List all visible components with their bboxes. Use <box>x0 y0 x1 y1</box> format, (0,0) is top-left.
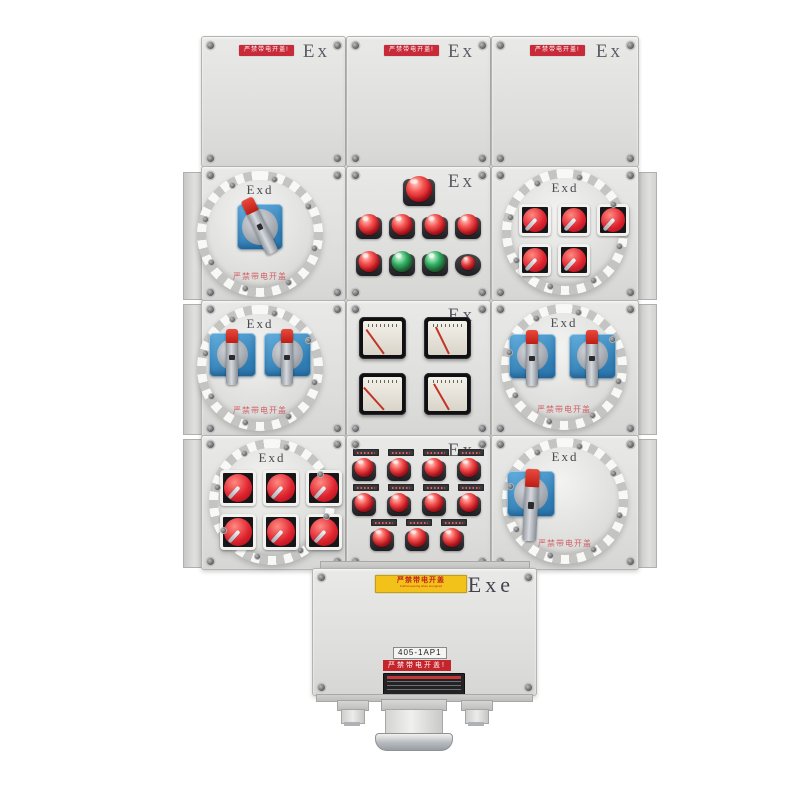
corner-screw <box>479 441 486 448</box>
handle-red-tip <box>281 329 293 343</box>
corner-screw <box>627 441 634 448</box>
labeled-indicator <box>440 519 468 551</box>
explosion-proof-cover: Exd 严禁带电开盖 <box>502 438 628 564</box>
corner-screw <box>627 155 634 162</box>
meter-ticks <box>433 380 462 383</box>
corner-screw <box>352 425 359 432</box>
exd-marking: Exd <box>502 180 628 196</box>
lamp-lens <box>355 493 374 512</box>
toggle-row <box>220 470 342 506</box>
meter-needle <box>434 327 448 355</box>
exd-marking: Exd <box>502 449 628 465</box>
warning-strip: 严禁带电开盖! <box>530 45 585 56</box>
nameplate <box>383 673 465 695</box>
rotary-switch[interactable] <box>237 204 283 250</box>
meter-ticks <box>433 324 462 327</box>
top-enclosure-2: 严禁带电开盖! Ex <box>346 36 491 167</box>
lamp-lens <box>359 251 380 272</box>
indicator-lamp-grid <box>347 449 490 551</box>
corner-screw <box>207 155 214 162</box>
cover-bolt <box>221 528 226 533</box>
cover-bolt <box>306 338 311 343</box>
meter-dial <box>428 321 467 355</box>
handle-slot <box>589 356 594 362</box>
corner-screw <box>497 441 504 448</box>
indicator-row <box>347 214 490 239</box>
lamp-lens <box>425 214 446 235</box>
top-enclosure-1: 严禁带电开盖! Ex <box>201 36 346 167</box>
handle-slot <box>528 502 535 509</box>
labeled-indicator <box>405 519 433 551</box>
module-pushbutton-panel: Ex <box>346 166 491 301</box>
toggle-row <box>519 244 590 276</box>
cover-bolt <box>318 472 323 477</box>
labeled-indicator <box>457 449 485 481</box>
side-flange-left-3 <box>183 439 202 568</box>
handle-red-tip <box>526 330 538 344</box>
ex-marking: Ex <box>448 41 475 63</box>
toggle-switch[interactable] <box>306 470 342 506</box>
labeled-indicator <box>387 449 415 481</box>
meter-needle <box>365 329 384 354</box>
lamp-lens <box>425 251 446 272</box>
toggle-switch-group <box>519 204 629 276</box>
meter-dial <box>428 377 467 411</box>
toggle-switch[interactable] <box>597 204 629 236</box>
indicator-row <box>347 484 490 516</box>
lamp-label-plate <box>388 484 414 491</box>
corner-screw <box>497 42 504 49</box>
corner-screw <box>207 306 214 313</box>
cover-bolt <box>611 471 616 476</box>
exd-marking: Exd <box>209 450 335 466</box>
push-button-red[interactable] <box>455 251 481 276</box>
cover-bolt <box>242 451 247 456</box>
rotary-switch[interactable] <box>209 333 256 377</box>
cover-bolt <box>255 554 260 559</box>
toggle-switch[interactable] <box>558 204 590 236</box>
corner-screw <box>497 425 504 432</box>
lamp-label-plate <box>458 484 484 491</box>
corner-screw <box>334 306 341 313</box>
toggle-switch[interactable] <box>519 204 551 236</box>
cover-bolt <box>209 394 214 399</box>
labeled-indicator <box>370 519 398 551</box>
corner-screw <box>334 172 341 179</box>
indicator-lamp <box>455 214 481 239</box>
corner-screw <box>352 306 359 313</box>
equipment-tag: 405-1AP1 <box>393 647 447 659</box>
labeled-indicator <box>457 484 485 516</box>
handle-slot <box>284 355 289 361</box>
rotary-switch[interactable] <box>507 471 555 517</box>
corner-screw <box>627 558 634 565</box>
corner-screw <box>627 42 634 49</box>
rotary-switch[interactable] <box>264 333 311 377</box>
lamp-lens <box>461 256 475 270</box>
indicator-lamp <box>405 528 429 551</box>
cable-gland-small-tip <box>468 722 484 726</box>
lamp-lens <box>425 493 444 512</box>
cover-bolt <box>243 286 248 291</box>
lamp-lens <box>372 528 391 547</box>
lamp-label-plate <box>441 519 467 526</box>
ex-marking: Ex <box>596 41 623 63</box>
explosion-proof-distribution-box-photo: 严禁带电开盖! Ex 严禁带电开盖! Ex 严禁带电开盖! Ex Exd 严禁带… <box>0 0 800 800</box>
warning-strip: 严禁带电开盖! <box>384 45 439 56</box>
switch-handle[interactable] <box>586 330 598 386</box>
lamp-label-plate <box>423 484 449 491</box>
rotary-switch[interactable] <box>569 334 616 379</box>
corner-screw <box>334 289 341 296</box>
meter-needle <box>363 387 384 410</box>
corner-screw <box>318 684 325 691</box>
labeled-indicator <box>352 484 380 516</box>
side-flange-right-2 <box>638 304 657 435</box>
handle-red-tip <box>586 330 598 344</box>
cover-bolt <box>591 547 596 552</box>
module-meter-panel: Ex <box>346 300 491 437</box>
toggle-switch[interactable] <box>220 470 256 506</box>
lamp-label-plate <box>406 519 432 526</box>
cover-bolt <box>616 379 621 384</box>
meter-dial <box>363 377 402 411</box>
terminal-enclosure: 严禁带电开盖 Forbid opening when energized Exe… <box>312 568 537 696</box>
yellow-warning-label: 严禁带电开盖 Forbid opening when energized <box>375 575 467 593</box>
toggle-row <box>519 204 629 236</box>
corner-screw <box>207 441 214 448</box>
exd-marking: Exd <box>197 316 323 332</box>
button-row <box>347 251 490 276</box>
explosion-proof-cover: Exd 严禁带电开盖 <box>197 171 323 297</box>
indicator-lamp <box>356 214 382 239</box>
toggle-switch[interactable] <box>558 244 590 276</box>
handle-slot <box>256 223 264 231</box>
lamp-lens <box>390 493 409 512</box>
corner-screw <box>334 425 341 432</box>
corner-screw <box>497 306 504 313</box>
red-warning-strip: 严禁带电开盖! <box>383 660 451 671</box>
lamp-lens <box>458 214 479 235</box>
corner-screw <box>207 558 214 565</box>
switch-handle[interactable] <box>226 329 238 385</box>
yellow-warning-text-en: Forbid opening when energized <box>400 585 442 588</box>
cover-bolt <box>591 278 596 283</box>
toggle-switch[interactable] <box>519 244 551 276</box>
lamp-lens <box>406 176 432 202</box>
meter-needle <box>433 384 449 411</box>
exd-marking: Exd <box>197 182 323 198</box>
cable-gland-small-tip <box>344 722 360 726</box>
corner-screw <box>479 172 486 179</box>
cable-gland-large-flare <box>375 733 453 751</box>
indicator-lamp <box>422 458 446 481</box>
cover-bolt <box>548 284 553 289</box>
cover-bolt <box>312 246 317 251</box>
corner-screw <box>334 441 341 448</box>
module-rotary-double-left: Exd 严禁带电开盖 <box>201 300 346 437</box>
module-rotary-large: Exd 严禁带电开盖 <box>491 435 639 570</box>
corner-screw <box>479 42 486 49</box>
handle-red-tip <box>525 469 540 488</box>
corner-screw <box>352 155 359 162</box>
corner-screw <box>627 172 634 179</box>
cover-bolt <box>243 420 248 425</box>
rotary-switch[interactable] <box>509 334 556 379</box>
cover-bolt <box>535 450 540 455</box>
cover-bolt <box>298 548 303 553</box>
corner-screw <box>627 306 634 313</box>
exd-marking: Exd <box>501 315 627 331</box>
corner-screw <box>627 425 634 432</box>
module-toggle-switches-6: Exd <box>201 435 346 570</box>
top-enclosure-3: 严禁带电开盖! Ex <box>491 36 639 167</box>
lamp-lens <box>390 458 409 477</box>
cover-warning-label: 严禁带电开盖 <box>197 271 323 282</box>
indicator-row <box>347 449 490 481</box>
cover-bolt <box>286 280 291 285</box>
panel-meter <box>359 317 406 359</box>
corner-screw <box>479 425 486 432</box>
handle-slot <box>229 355 234 361</box>
cover-bolt <box>513 393 518 398</box>
indicator-lamp <box>457 493 481 516</box>
module-rotary-double-right: Exd 严禁带电开盖 <box>491 300 639 437</box>
lamp-lens <box>407 528 426 547</box>
corner-screw <box>627 289 634 296</box>
exe-marking: Exe <box>468 572 514 598</box>
cover-bolt <box>514 527 519 532</box>
module-indicator-panel: Ex <box>346 435 491 570</box>
panel-meter <box>424 317 471 359</box>
ex-marking: Ex <box>303 41 330 63</box>
labeled-indicator <box>387 484 415 516</box>
cover-bolt <box>534 316 539 321</box>
lamp-lens <box>460 458 479 477</box>
corner-screw <box>497 155 504 162</box>
cover-bolt <box>209 260 214 265</box>
corner-screw <box>207 172 214 179</box>
explosion-proof-cover: Exd 严禁带电开盖 <box>197 305 323 431</box>
corner-screw <box>497 172 504 179</box>
module-rotary-single: Exd 严禁带电开盖 <box>201 166 346 301</box>
push-button-red[interactable] <box>356 251 382 276</box>
cover-bolt <box>548 553 553 558</box>
corner-screw <box>334 42 341 49</box>
indicator-lamp <box>387 493 411 516</box>
corner-screw <box>525 574 532 581</box>
cover-bolt <box>535 181 540 186</box>
side-flange-right-3 <box>638 439 657 568</box>
lamp-label-plate <box>423 449 449 456</box>
lamp-label-plate <box>388 449 414 456</box>
cover-bolt <box>590 413 595 418</box>
meter-grid <box>359 317 475 415</box>
corner-screw <box>207 289 214 296</box>
toggle-switch[interactable] <box>263 514 299 550</box>
corner-screw <box>479 155 486 162</box>
cover-bolt <box>306 204 311 209</box>
handle-slot <box>529 356 534 362</box>
cable-gland-large-body <box>385 709 443 735</box>
indicator-lamp <box>370 528 394 551</box>
corner-screw <box>334 155 341 162</box>
switch-handle[interactable] <box>281 329 293 385</box>
toggle-switch-group <box>220 470 342 550</box>
lamp-lens <box>442 528 461 547</box>
lamp-label-plate <box>371 519 397 526</box>
toggle-switch[interactable] <box>306 514 342 550</box>
handle-red-tip <box>226 329 238 343</box>
corner-screw <box>207 42 214 49</box>
lamp-lens <box>359 214 380 235</box>
corner-screw <box>479 306 486 313</box>
lamp-lens <box>392 214 413 235</box>
cover-bolt <box>312 380 317 385</box>
labeled-indicator <box>422 449 450 481</box>
cover-bolt <box>617 244 622 249</box>
side-flange-right-1 <box>638 172 657 300</box>
switch-handle[interactable] <box>526 330 538 386</box>
panel-meter <box>424 373 471 415</box>
labeled-indicator <box>422 484 450 516</box>
toggle-switch[interactable] <box>263 470 299 506</box>
indicator-row <box>347 519 490 551</box>
yellow-warning-text-cn: 严禁带电开盖 <box>379 577 463 585</box>
lamp-label-plate <box>353 484 379 491</box>
lamp-lens <box>355 458 374 477</box>
panel-meter <box>359 373 406 415</box>
lamp-lens <box>425 458 444 477</box>
indicator-lamp <box>403 176 435 206</box>
corner-screw <box>497 289 504 296</box>
warning-strip: 严禁带电开盖! <box>239 45 294 56</box>
lamp-lens <box>392 251 413 272</box>
indicator-lamp <box>387 458 411 481</box>
lamp-lens <box>460 493 479 512</box>
meter-ticks <box>368 324 397 327</box>
corner-screw <box>525 684 532 691</box>
cover-bolt <box>610 337 615 342</box>
cover-warning-label: 严禁带电开盖 <box>501 404 627 415</box>
cover-warning-label: 严禁带电开盖 <box>197 405 323 416</box>
explosion-proof-cover: Exd <box>502 169 628 295</box>
explosion-proof-cover: Exd 严禁带电开盖 <box>501 304 627 430</box>
cover-bolt <box>286 414 291 419</box>
module-toggle-switches-5: Exd <box>491 166 639 301</box>
push-button-green[interactable] <box>389 251 415 276</box>
labeled-indicator <box>352 449 380 481</box>
corner-screw <box>352 289 359 296</box>
cover-bolt <box>230 183 235 188</box>
corner-screw <box>352 441 359 448</box>
corner-screw <box>318 574 325 581</box>
meter-dial <box>363 321 402 355</box>
cover-bolt <box>514 258 519 263</box>
corner-screw <box>352 42 359 49</box>
corner-screw <box>479 289 486 296</box>
cover-warning-label: 严禁带电开盖 <box>502 538 628 549</box>
indicator-lamp <box>352 493 376 516</box>
cover-bolt <box>324 514 329 519</box>
corner-screw <box>352 172 359 179</box>
lamp-label-plate <box>458 449 484 456</box>
corner-screw <box>207 425 214 432</box>
indicator-lamp <box>422 493 446 516</box>
indicator-lamp <box>422 214 448 239</box>
indicator-lamp <box>352 458 376 481</box>
meter-ticks <box>368 380 397 383</box>
cover-bolt <box>611 202 616 207</box>
cover-bolt <box>617 513 622 518</box>
explosion-proof-cover: Exd <box>209 439 335 565</box>
cover-bolt <box>547 419 552 424</box>
ex-marking: Ex <box>448 171 475 193</box>
cover-bolt <box>230 317 235 322</box>
push-button-green[interactable] <box>422 251 448 276</box>
indicator-lamp <box>389 214 415 239</box>
indicator-lamp <box>457 458 481 481</box>
toggle-row <box>220 514 342 550</box>
indicator-lamp <box>440 528 464 551</box>
lamp-label-plate <box>353 449 379 456</box>
